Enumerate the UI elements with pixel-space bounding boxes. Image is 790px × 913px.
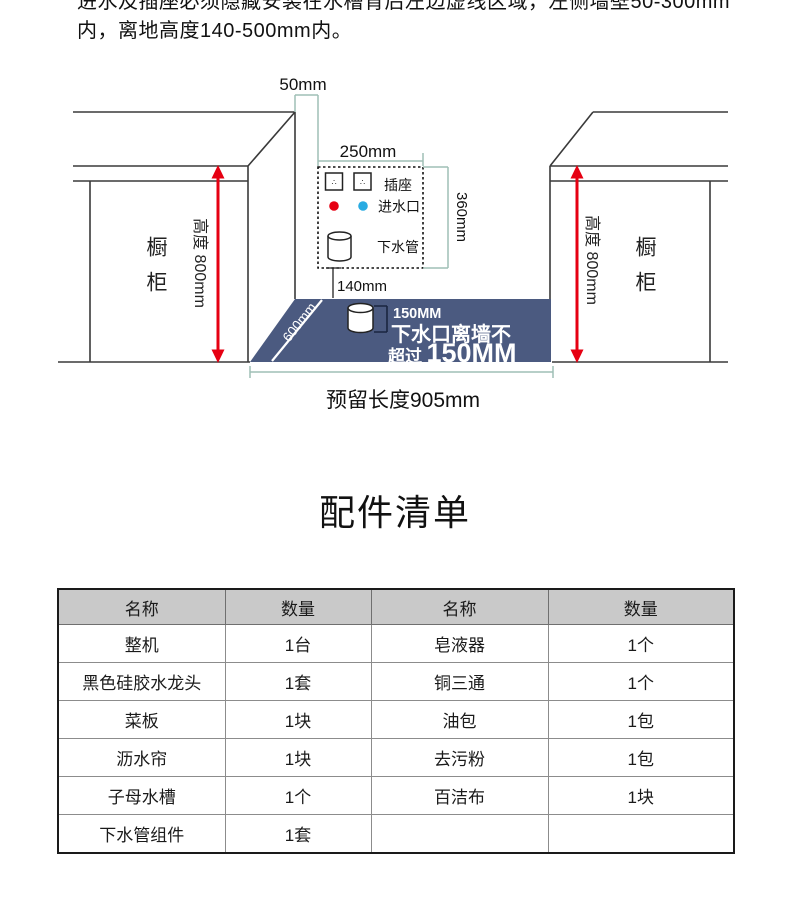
right-height-label: 高度 800mm xyxy=(579,210,603,310)
install-guide-page: 进水及插座必须隐藏安装在水槽背后左边虚线区域，左侧墙壁50-300mm 内，离地… xyxy=(0,0,790,913)
floor-note-value: 150MM xyxy=(426,338,516,368)
part-name: 油包 xyxy=(371,701,548,739)
header-qty-2: 数量 xyxy=(548,589,734,625)
installation-diagram: 600mm 150MM 下水口离墙不 超过 150MM ∴ ∴ 插座 进水口 xyxy=(0,0,790,430)
part-qty: 1套 xyxy=(225,815,371,854)
dim-50-lines xyxy=(295,95,318,166)
part-name: 子母水槽 xyxy=(58,777,225,815)
socket-mark-1: ∴ xyxy=(331,178,336,187)
part-qty: 1套 xyxy=(225,663,371,701)
hot-water-dot xyxy=(329,201,339,211)
table-row: 下水管组件 1套 xyxy=(58,815,734,854)
reserved-length-label: 预留长度905mm xyxy=(250,384,556,414)
header-qty-1: 数量 xyxy=(225,589,371,625)
part-name: 沥水帘 xyxy=(58,739,225,777)
left-cabinet-label: 橱柜 xyxy=(140,236,170,306)
part-name: 去污粉 xyxy=(371,739,548,777)
part-qty: 1包 xyxy=(548,701,734,739)
dim-140-label: 140mm xyxy=(337,278,387,295)
part-name: 黑色硅胶水龙头 xyxy=(58,663,225,701)
part-qty: 1台 xyxy=(225,625,371,663)
left-cabinet-outline xyxy=(58,112,295,362)
part-name xyxy=(371,815,548,854)
floor-note-prefix: 超过 xyxy=(388,346,422,366)
parts-table: 名称 数量 名称 数量 整机 1台 皂液器 1个 黑色硅胶水龙头 1套 铜三通 … xyxy=(57,588,735,854)
box-drain-pipe xyxy=(328,232,351,261)
header-name-1: 名称 xyxy=(58,589,225,625)
height-arrow-left xyxy=(212,165,225,363)
cold-water-dot xyxy=(358,201,368,211)
table-row: 沥水帘 1块 去污粉 1包 xyxy=(58,739,734,777)
dim-250-label: 250mm xyxy=(340,142,397,161)
part-name: 整机 xyxy=(58,625,225,663)
dim-360-label: 360mm xyxy=(453,192,470,242)
part-name: 下水管组件 xyxy=(58,815,225,854)
part-qty xyxy=(548,815,734,854)
part-qty: 1个 xyxy=(225,777,371,815)
parts-table-header-row: 名称 数量 名称 数量 xyxy=(58,589,734,625)
table-row: 整机 1台 皂液器 1个 xyxy=(58,625,734,663)
part-qty: 1块 xyxy=(225,701,371,739)
part-name: 铜三通 xyxy=(371,663,548,701)
part-qty: 1个 xyxy=(548,663,734,701)
table-row: 菜板 1块 油包 1包 xyxy=(58,701,734,739)
drain-label: 下水管 xyxy=(377,239,419,255)
socket-label: 插座 xyxy=(384,177,412,193)
part-name: 百洁布 xyxy=(371,777,548,815)
table-row: 子母水槽 1个 百洁布 1块 xyxy=(58,777,734,815)
part-qty: 1个 xyxy=(548,625,734,663)
socket-icons: ∴ ∴ xyxy=(326,173,372,190)
part-qty: 1包 xyxy=(548,739,734,777)
part-qty: 1块 xyxy=(225,739,371,777)
left-height-label: 高度 800mm xyxy=(187,213,211,313)
part-name: 菜板 xyxy=(58,701,225,739)
inlet-label: 进水口 xyxy=(378,199,420,215)
socket-mark-2: ∴ xyxy=(360,178,365,187)
dim-50-label: 50mm xyxy=(279,75,326,94)
part-qty: 1块 xyxy=(548,777,734,815)
table-row: 黑色硅胶水龙头 1套 铜三通 1个 xyxy=(58,663,734,701)
floor-drain-dim: 150MM xyxy=(393,306,441,322)
right-cabinet-label: 橱柜 xyxy=(629,236,659,306)
parts-list-title: 配件清单 xyxy=(0,484,790,536)
floor-drain-pipe xyxy=(348,304,373,333)
header-name-2: 名称 xyxy=(371,589,548,625)
part-name: 皂液器 xyxy=(371,625,548,663)
dim-360-lines xyxy=(423,167,448,268)
